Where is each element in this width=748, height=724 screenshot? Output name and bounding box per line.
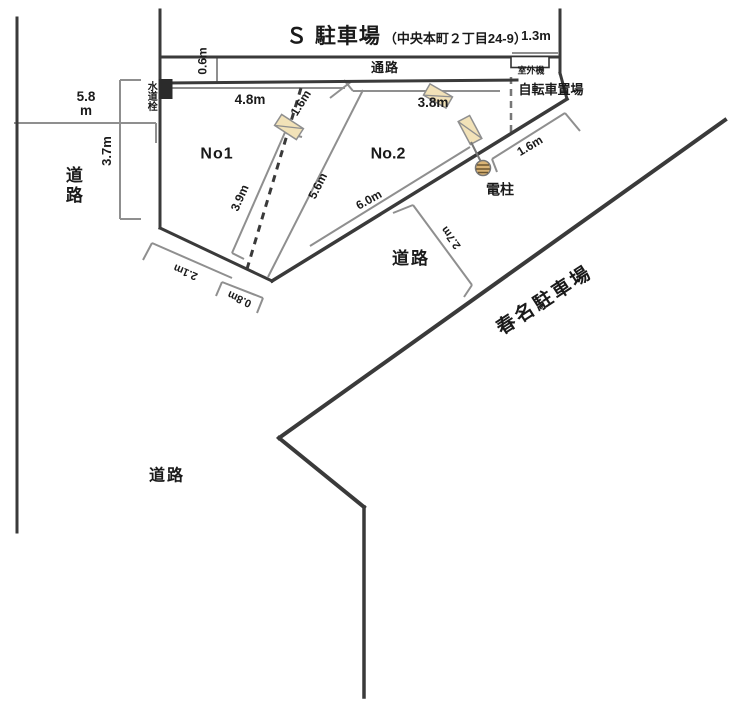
power-pole-label: 電柱 — [486, 183, 514, 198]
neighbor-boundary-diagonal — [279, 120, 725, 438]
stall-notch-a — [330, 81, 352, 98]
road-lower-label: 道路 — [149, 469, 185, 486]
plan-title-note: （中央本町２丁目24-9） — [384, 28, 527, 47]
bracket-1-6-pole-tick-right — [565, 113, 580, 131]
plan-title: Ｓ 駐車場 （中央本町２丁目24-9） — [286, 20, 527, 50]
stall-marker-3 — [458, 115, 482, 144]
plan-drawing — [0, 0, 748, 724]
bracket-2-7-tick-bottom — [464, 285, 472, 297]
stall-divider-dashed-line — [247, 88, 301, 269]
measure-0-6m: 0.6m — [197, 47, 210, 74]
neighbor-boundary-bend — [279, 438, 364, 507]
space-no2-label: No.2 — [371, 147, 406, 164]
measure-3-8m: 3.8m — [418, 96, 449, 110]
measure-4-8m: 4.8m — [235, 93, 266, 107]
aisle-bottom-line — [166, 80, 517, 83]
bracket-0-8-tick-right — [257, 298, 263, 313]
boundary-lines — [17, 10, 725, 697]
measure-1-3m: 1.3m — [521, 29, 551, 43]
bracket-0-8-tick-left — [216, 282, 222, 296]
measure-3-7m: 3.7m — [100, 136, 114, 166]
road-west-label: 道路 — [63, 166, 81, 206]
bracket-2-1-tick — [143, 243, 152, 260]
water-tap-label: 水道栓 — [145, 81, 156, 111]
plan-title-main: Ｓ 駐車場 — [286, 20, 381, 50]
space-no1-label: No1 — [200, 147, 233, 164]
bracket-2-7 — [413, 205, 472, 285]
road-south-label: 道路 — [392, 250, 430, 268]
bicycle-parking-label: 自転車置場 — [518, 83, 583, 97]
measure-5-8m-value: 5.8 — [77, 90, 96, 104]
water-tap-marker — [159, 79, 173, 99]
bracket-1-6-pole-tick-left — [492, 159, 497, 172]
parking-site-plan: Ｓ 駐車場 （中央本町２丁目24-9） 1.3m 0.6m 5.8 m 3.7m… — [0, 0, 748, 724]
measure-5-8m-unit: m — [77, 104, 96, 118]
stall-line-3-9-tick-bottom — [232, 253, 244, 259]
aisle-label: 通路 — [371, 61, 399, 75]
measure-5-8m: 5.8 m — [77, 90, 96, 118]
outdoor-unit-label: 室外機 — [517, 66, 544, 75]
